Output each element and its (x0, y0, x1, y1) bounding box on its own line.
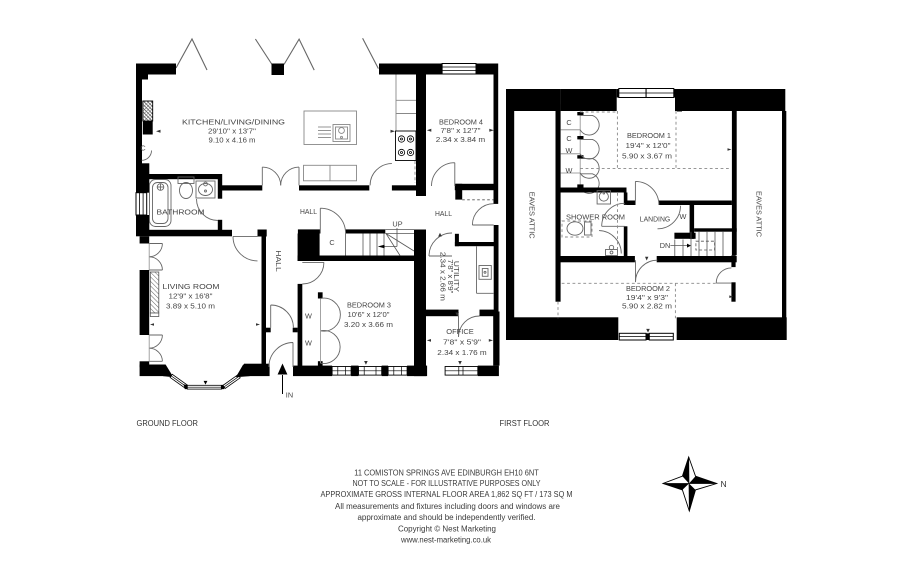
svg-text:GROUND FLOOR: GROUND FLOOR (137, 418, 199, 428)
svg-text:5.90 x 3.67 m: 5.90 x 3.67 m (622, 151, 672, 160)
svg-text:www.nest-marketing.co.uk: www.nest-marketing.co.uk (400, 535, 491, 544)
svg-text:BEDROOM 3: BEDROOM 3 (347, 300, 391, 309)
svg-text:EAVES ATTIC: EAVES ATTIC (528, 192, 537, 239)
svg-text:BEDROOM 2: BEDROOM 2 (626, 284, 670, 293)
svg-text:C: C (329, 238, 334, 247)
svg-text:7'8" x 5'9": 7'8" x 5'9" (443, 337, 481, 346)
svg-text:C: C (140, 143, 145, 152)
svg-text:C: C (566, 118, 571, 127)
svg-text:5.90 x 2.82 m: 5.90 x 2.82 m (622, 301, 672, 310)
svg-text:OFFICE: OFFICE (446, 327, 474, 336)
svg-text:HALL: HALL (435, 209, 452, 218)
svg-text:29'10'' x 13'7'': 29'10'' x 13'7'' (208, 127, 257, 136)
svg-text:approximate and should be inde: approximate and should be independently … (358, 513, 536, 522)
svg-text:9.10 x 4.16 m: 9.10 x 4.16 m (209, 135, 256, 144)
svg-text:2.34 x 2.66 m: 2.34 x 2.66 m (439, 252, 448, 301)
svg-text:BEDROOM 4: BEDROOM 4 (439, 117, 483, 126)
svg-text:7'8" x 12'7": 7'8" x 12'7" (441, 126, 481, 135)
svg-text:11 COMISTON SPRINGS AVE EDINBU: 11 COMISTON SPRINGS AVE EDINBURGH EH10 6… (354, 469, 539, 478)
svg-text:2.34 x 3.84 m: 2.34 x 3.84 m (436, 135, 485, 144)
svg-text:SHOWER ROOM: SHOWER ROOM (566, 212, 625, 221)
svg-text:UP: UP (392, 220, 402, 229)
svg-text:FIRST FLOOR: FIRST FLOOR (500, 418, 550, 428)
svg-text:W: W (305, 339, 312, 348)
svg-text:HALL: HALL (300, 207, 317, 216)
svg-text:LANDING: LANDING (640, 215, 671, 224)
svg-text:N: N (721, 479, 727, 489)
svg-text:All measurements and fixtures: All measurements and fixtures including … (335, 502, 560, 511)
svg-text:19'4'' x 12'0": 19'4'' x 12'0" (626, 141, 671, 150)
svg-text:12'9" x 16'8": 12'9" x 16'8" (169, 292, 213, 301)
svg-text:HALL: HALL (274, 250, 283, 272)
svg-text:C: C (566, 134, 571, 143)
svg-text:W: W (566, 166, 573, 175)
svg-text:W: W (566, 146, 573, 155)
svg-text:BATHROOM: BATHROOM (157, 207, 205, 216)
svg-text:W: W (305, 311, 312, 320)
svg-text:3.20 x 3.66 m: 3.20 x 3.66 m (344, 320, 393, 329)
svg-text:W: W (680, 212, 687, 221)
svg-text:10'6" x 12'0": 10'6" x 12'0" (348, 310, 390, 319)
svg-text:2.34 x 1.76 m: 2.34 x 1.76 m (437, 348, 486, 357)
svg-text:3.89 x 5.10 m: 3.89 x 5.10 m (166, 302, 215, 311)
svg-text:KITCHEN/LIVING/DINING: KITCHEN/LIVING/DINING (182, 118, 285, 127)
svg-text:BEDROOM 1: BEDROOM 1 (627, 131, 671, 140)
svg-text:APPROXIMATE GROSS INTERNAL FLO: APPROXIMATE GROSS INTERNAL FLOOR AREA 1,… (321, 490, 573, 499)
svg-text:IN: IN (286, 391, 293, 400)
svg-text:EAVES ATTIC: EAVES ATTIC (755, 191, 764, 237)
svg-text:LIVING ROOM: LIVING ROOM (163, 282, 220, 291)
svg-text:NOT TO SCALE - FOR ILLUSTRATIV: NOT TO SCALE - FOR ILLUSTRATIVE PURPOSES… (353, 479, 542, 488)
svg-text:DN: DN (660, 241, 671, 250)
svg-text:Copyright © Nest Marketing: Copyright © Nest Marketing (398, 525, 496, 534)
